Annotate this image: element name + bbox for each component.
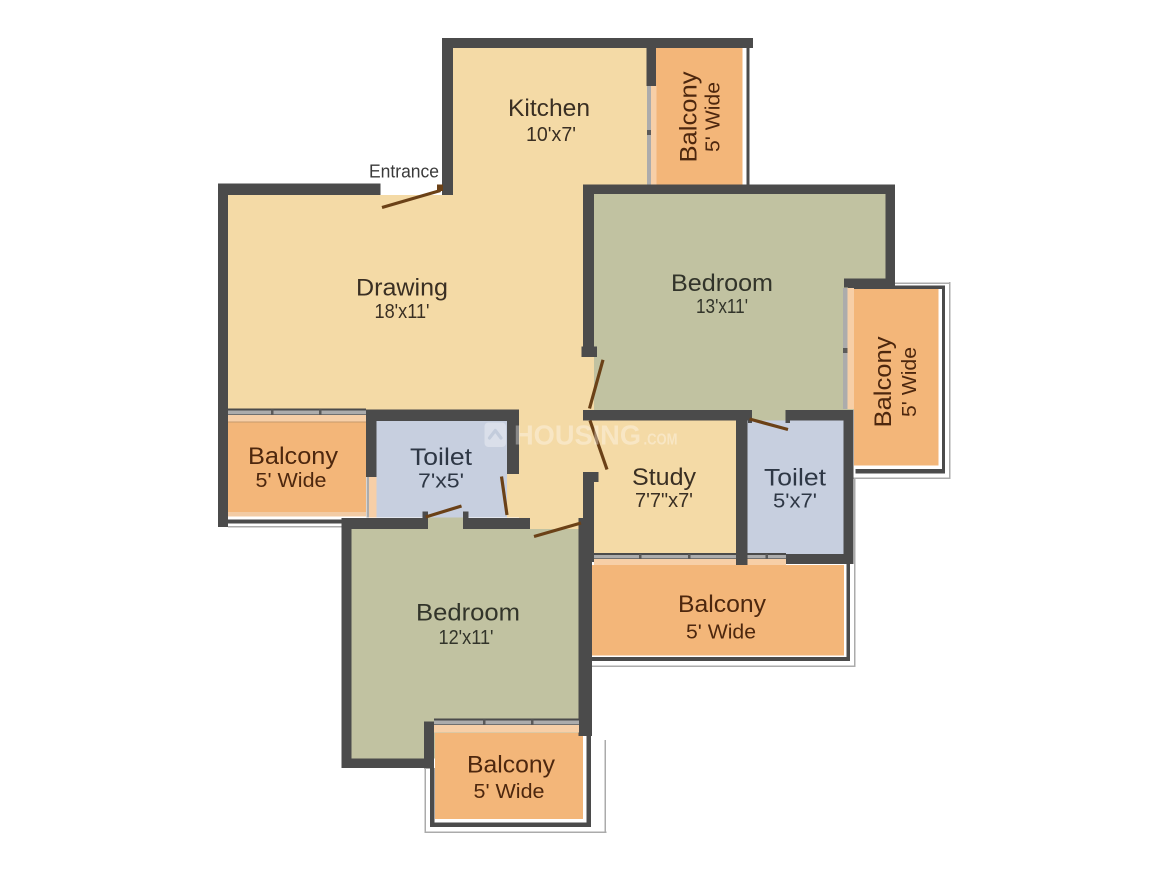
svg-text:Bedroom: Bedroom xyxy=(416,600,520,627)
svg-text:Balcony: Balcony xyxy=(678,591,766,618)
svg-text:5' Wide: 5' Wide xyxy=(256,470,327,492)
svg-text:7'7"x7': 7'7"x7' xyxy=(635,490,693,512)
svg-text:Balcony: Balcony xyxy=(870,337,897,428)
svg-text:12'x11': 12'x11' xyxy=(439,627,494,649)
svg-text:Study: Study xyxy=(632,464,696,491)
svg-text:5'x7': 5'x7' xyxy=(773,491,817,513)
svg-text:Toilet: Toilet xyxy=(410,444,472,471)
svg-text:Bedroom: Bedroom xyxy=(671,270,773,297)
svg-text:Drawing: Drawing xyxy=(356,275,448,302)
svg-text:5' Wide: 5' Wide xyxy=(899,347,921,417)
svg-text:18'x11': 18'x11' xyxy=(375,301,430,323)
svg-text:10'x7': 10'x7' xyxy=(526,124,576,146)
svg-text:Toilet: Toilet xyxy=(764,465,826,492)
svg-text:Entrance: Entrance xyxy=(369,162,439,182)
svg-text:Balcony: Balcony xyxy=(676,72,703,163)
svg-text:Kitchen: Kitchen xyxy=(508,95,590,122)
svg-text:5' Wide: 5' Wide xyxy=(474,781,545,803)
svg-text:Balcony: Balcony xyxy=(248,443,338,470)
svg-text:7'x5': 7'x5' xyxy=(418,471,464,493)
svg-text:13'x11': 13'x11' xyxy=(696,296,748,318)
svg-text:5' Wide: 5' Wide xyxy=(703,82,725,152)
svg-text:5' Wide: 5' Wide xyxy=(686,622,756,644)
svg-text:.COM: .COM xyxy=(644,432,678,449)
svg-text:Balcony: Balcony xyxy=(467,752,555,779)
svg-text:HOUSING: HOUSING xyxy=(514,420,641,451)
